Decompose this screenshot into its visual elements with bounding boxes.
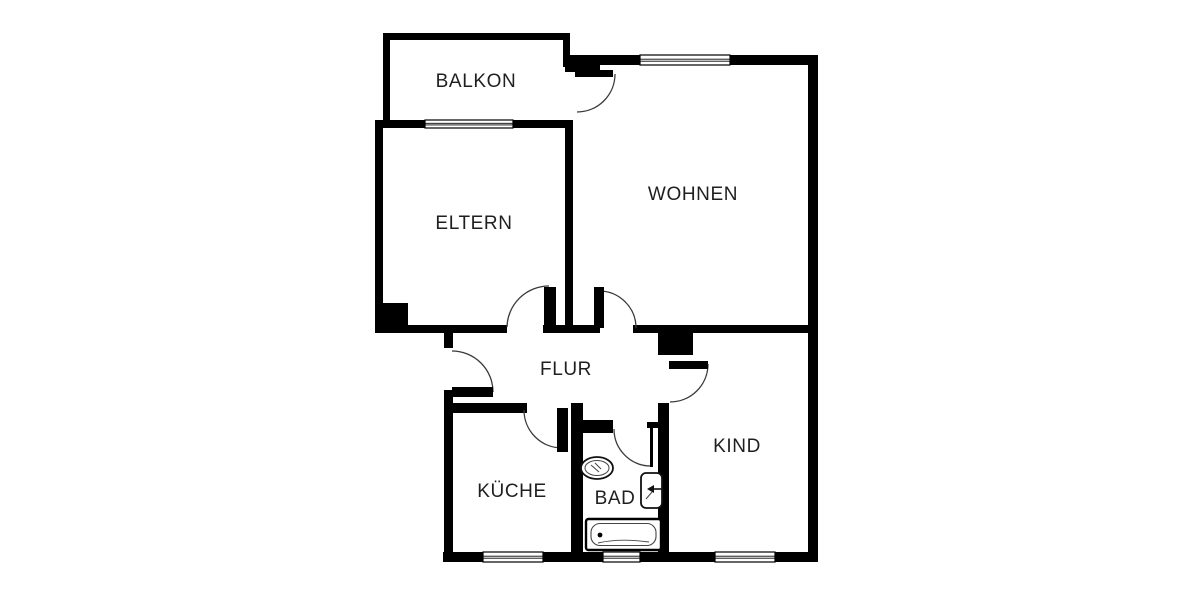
wall-segment (543, 552, 603, 562)
wall-segment (658, 333, 693, 355)
wall-segment (583, 420, 613, 433)
door-swing-arc (614, 429, 651, 466)
window (715, 552, 775, 562)
wall-segment (443, 552, 483, 562)
wall-segment (444, 325, 453, 348)
room-label-wohnen: WOHNEN (648, 184, 738, 206)
wall-segment (571, 403, 583, 552)
room-label-eltern: ELTERN (435, 213, 512, 235)
door-swing-arc (577, 74, 615, 112)
door-swing-arc (524, 410, 562, 448)
door-leaf (594, 287, 604, 328)
room-label-kind: KIND (713, 436, 761, 458)
door-leaf (557, 408, 568, 452)
wall-segment (375, 120, 383, 333)
wall-segment (775, 552, 818, 562)
wall-segment (808, 55, 818, 562)
wall-segment (633, 325, 815, 333)
wall-segment (513, 120, 573, 128)
window (640, 55, 730, 65)
window (603, 552, 640, 562)
wall-segment (383, 33, 390, 123)
room-label-bad: BAD (595, 488, 636, 510)
door-swing-arc (670, 364, 708, 402)
wall-segment (565, 128, 573, 327)
door-leaf (544, 287, 556, 328)
door-swing-arc (507, 286, 549, 327)
wall-segment (730, 55, 818, 65)
door-leaf (650, 428, 653, 467)
room-label-kueche: KÜCHE (477, 481, 547, 503)
wall-segment (444, 390, 453, 552)
door-leaf (452, 387, 493, 397)
floor-plan-drawing (0, 0, 1200, 600)
wall-segment (565, 55, 640, 65)
wall-segment (640, 552, 715, 562)
door-swing-arc (452, 351, 493, 392)
room-label-flur: FLUR (540, 359, 592, 381)
wall-segment (383, 33, 570, 40)
window (425, 120, 513, 128)
room-label-balkon: BALKON (436, 71, 517, 93)
wall-segment (375, 325, 507, 333)
door-leaf (575, 70, 613, 77)
window (483, 552, 543, 562)
door-swing-arc (599, 291, 636, 328)
floor-plan: BALKON ELTERN WOHNEN FLUR KÜCHE BAD KIND (0, 0, 1200, 600)
wall-segment (453, 403, 527, 413)
bathtub-drain (598, 533, 603, 538)
door-leaf (669, 361, 708, 369)
